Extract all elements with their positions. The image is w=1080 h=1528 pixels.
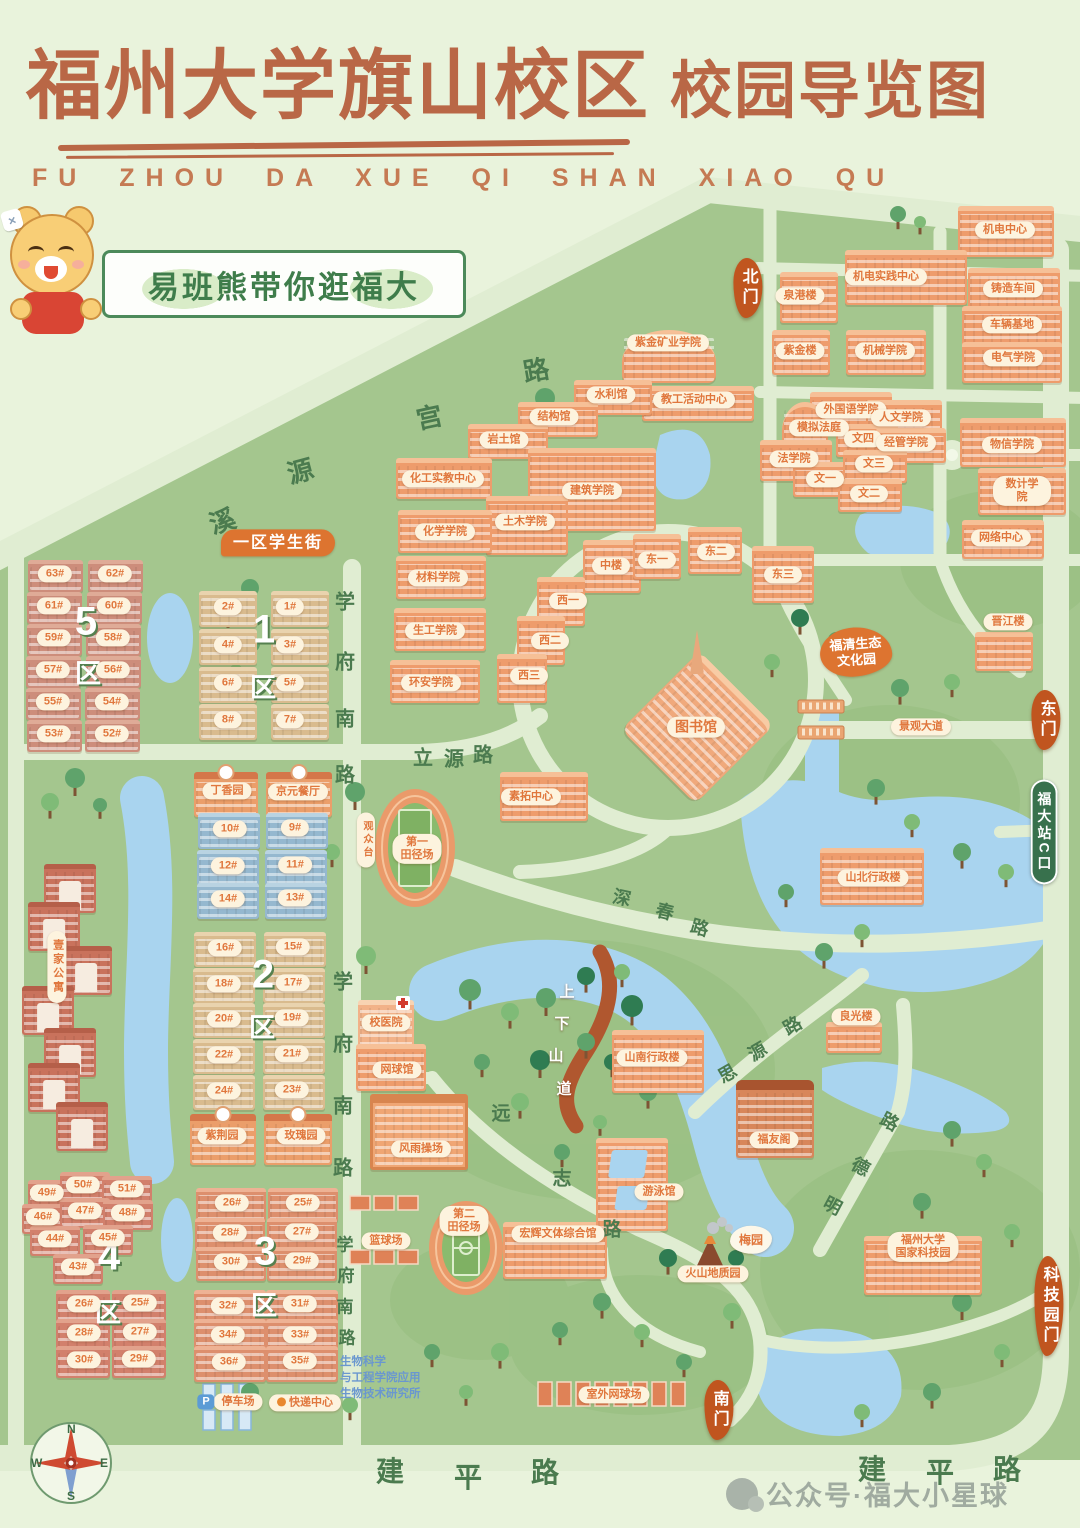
map-label: 水利馆 [587, 386, 636, 403]
parking-icon: P [197, 1394, 214, 1409]
road-name-char: 源 [444, 743, 464, 772]
map-overlay: 机电中心泉港楼机电实践中心铸造车间车辆基地电气学院紫金楼机械学院物信学院数计学院… [0, 0, 1080, 1528]
map-label: 法学院 [770, 450, 819, 467]
map-building [56, 1102, 108, 1151]
watermark: 公众号·福大小星球 [726, 1474, 1009, 1513]
map-label: 环安学院 [401, 674, 461, 691]
wechat-icon [726, 1478, 758, 1510]
map-label: 50# [66, 1176, 100, 1193]
zone-mark: 5 [75, 600, 97, 645]
map-label: 物信学院 [982, 436, 1042, 453]
map-building [826, 1022, 882, 1053]
map-label: 人文学院 [871, 409, 931, 426]
map-label: 岩土馆 [480, 431, 529, 448]
institute-note: 生物科学 与工程学院应用 生物技术研究所 [332, 1352, 429, 1404]
compass-w: W [31, 1456, 42, 1470]
road-name-char: 南 [335, 703, 355, 732]
map-label: 网络中心 [971, 529, 1031, 546]
road-name-char: 学 [333, 966, 353, 995]
map-label: 结构馆 [530, 408, 579, 425]
road-name-char: 路 [688, 912, 712, 942]
map-label: 13# [278, 889, 312, 906]
map-label: 宏辉文体综合馆 [512, 1225, 605, 1242]
watermark-text: 公众号·福大小星球 [766, 1474, 1009, 1513]
map-label: 54# [95, 693, 129, 710]
map-label: 壹家公寓 [47, 931, 66, 1003]
map-label: 57# [36, 661, 70, 678]
metro-exit: 福大站C口 [1031, 779, 1058, 884]
map-label: 室外网球场 [579, 1386, 650, 1403]
eco-park-label: 福清生态 文化园 [818, 625, 893, 679]
mascot-banner: 易班熊带你逛福大 [102, 250, 466, 318]
map-label: 玫瑰园 [277, 1127, 326, 1144]
road-name-char: 明 [819, 1189, 847, 1220]
zone-mark: 1 [253, 608, 275, 653]
map-label: 东二 [697, 543, 735, 560]
mascot-banner-text: 易班熊带你逛福大 [148, 262, 420, 307]
map-label: 26# [215, 1194, 249, 1211]
map-label: 文一 [806, 470, 844, 487]
road-name-char: 远 [491, 1099, 510, 1126]
map-label: 45# [91, 1229, 125, 1246]
map-label: 56# [96, 661, 130, 678]
map-label: 紫荆园 [198, 1127, 247, 1144]
map-label: 27# [123, 1323, 157, 1340]
map-label: 55# [36, 693, 70, 710]
bear-head [10, 214, 94, 296]
road-name-char: 德 [847, 1150, 875, 1181]
map-label: 中楼 [592, 557, 630, 574]
map-label: 建筑学院 [562, 482, 622, 499]
map-label: 58# [96, 629, 130, 646]
map-label: 19# [275, 1009, 309, 1026]
road-name-char: 府 [333, 1028, 353, 1057]
bear-blush [18, 260, 30, 269]
map-label: 25# [286, 1194, 320, 1211]
map-label: 63# [38, 565, 72, 582]
map-label: 27# [285, 1223, 319, 1240]
road-name-char: 立 [413, 742, 433, 771]
road-name-char: 路 [778, 1009, 807, 1041]
road-name-char: 南 [337, 1293, 354, 1318]
map-label: 36# [212, 1353, 246, 1370]
road-name-char: 学 [335, 586, 355, 615]
map-label: 西二 [531, 632, 569, 649]
map-label: 34# [211, 1326, 245, 1343]
map-label: 素拓中心 [501, 788, 561, 805]
map-label: 23# [275, 1081, 309, 1098]
map-label: 44# [38, 1230, 72, 1247]
map-label: 东三 [764, 566, 802, 583]
road-name-char: 山 [548, 1045, 563, 1066]
map-label: 化工实教中心 [402, 470, 484, 487]
map-label: 观众台 [357, 813, 375, 868]
road-name-char: 学 [337, 1231, 354, 1256]
map-label: 化学学院 [415, 523, 475, 540]
map-label: 网球馆 [373, 1061, 422, 1078]
zone-mark: 区 [251, 1286, 277, 1323]
map-label: 7# [276, 711, 304, 728]
map-label: 35# [283, 1352, 317, 1369]
street-banner: 一区学生街 [221, 529, 335, 556]
map-label: 62# [98, 565, 132, 582]
map-label: 火山地质园 [678, 1265, 749, 1282]
map-label: 梅园 [730, 1226, 772, 1254]
map-label: 17# [276, 974, 310, 991]
map-label: 12# [211, 857, 245, 874]
map-label: 20# [207, 1010, 241, 1027]
map-label: 材料学院 [408, 569, 468, 586]
map-label: 机械学院 [855, 342, 915, 359]
map-label: 山南行政楼 [617, 1049, 688, 1066]
map-label: 6# [214, 674, 242, 691]
road-name-char: 路 [473, 739, 493, 768]
road-name-char: 路 [339, 1324, 356, 1349]
map-label: 14# [211, 890, 245, 907]
road-name-char: 上 [559, 981, 574, 1002]
map-label: 紫金矿业学院 [627, 334, 709, 351]
bear-mascot: × [2, 206, 110, 338]
map-label: 21# [275, 1045, 309, 1062]
road-name-char: 府 [338, 1262, 355, 1287]
gate-scipark: 科技园门 [1034, 1256, 1063, 1356]
bear-blush [72, 260, 84, 269]
map-label: 图书馆 [667, 717, 725, 738]
map-building [975, 632, 1033, 671]
map-label: 校医院 [362, 1014, 411, 1031]
road-name-char: 路 [602, 1215, 621, 1242]
campus-map-poster: 机电中心泉港楼机电实践中心铸造车间车辆基地电气学院紫金楼机械学院物信学院数计学院… [0, 0, 1080, 1528]
map-label: 60# [97, 597, 131, 614]
map-label: 28# [213, 1224, 247, 1241]
map-label: 京元餐厅 [268, 783, 328, 800]
compass-rose: N E S W [28, 1420, 114, 1506]
page-title: 福州大学旗山校区 校园导览图 [26, 24, 990, 134]
zone-mark: 区 [250, 668, 276, 705]
map-label: 风雨操场 [391, 1140, 451, 1157]
map-label: 丁香园 [203, 782, 252, 799]
map-label: 30# [214, 1253, 248, 1270]
map-label: 快递中心 [269, 1394, 341, 1411]
bear-paw [80, 298, 102, 320]
map-label: 福州大学 国家科技园 [888, 1232, 959, 1262]
map-label: 61# [37, 597, 71, 614]
map-label: 机电中心 [975, 221, 1035, 238]
map-label: 游泳馆 [635, 1183, 684, 1200]
map-label: 良光楼 [832, 1008, 881, 1025]
bear-eye [28, 246, 44, 258]
road-name-char: 宫 [412, 395, 445, 437]
bear-eye [58, 246, 74, 258]
map-label: 2# [214, 598, 242, 615]
map-label: 5# [276, 674, 304, 691]
map-label: 32# [211, 1297, 245, 1314]
library-spire [690, 630, 704, 674]
map-label: 26# [67, 1295, 101, 1312]
map-label: 文三 [855, 455, 893, 472]
map-label: 25# [123, 1294, 157, 1311]
map-label: 29# [285, 1252, 319, 1269]
compass-s: S [67, 1489, 75, 1503]
map-label: 篮球场 [362, 1232, 411, 1249]
map-label: 52# [95, 725, 129, 742]
road-name-char: 路 [876, 1105, 904, 1136]
map-label: 3# [276, 636, 304, 653]
road-name-char: 南 [333, 1090, 353, 1119]
road-name-char: 府 [335, 646, 355, 675]
map-label: 数计学院 [993, 476, 1051, 506]
map-label: 文二 [850, 485, 888, 502]
map-label: 第一 田径场 [393, 834, 442, 864]
map-label: 9# [281, 819, 309, 836]
road-name-char: 路 [335, 759, 355, 788]
road-name-char: 源 [283, 449, 318, 491]
map-label: 49# [30, 1184, 64, 1201]
map-label: 经管学院 [876, 434, 936, 451]
map-label: 山北行政楼 [838, 869, 909, 886]
gate-north: 北门 [733, 258, 762, 318]
road-name-char: 下 [554, 1013, 569, 1034]
map-label: 模拟法庭 [789, 419, 849, 436]
map-label: 紫金楼 [776, 342, 825, 359]
map-label: 48# [111, 1204, 145, 1221]
map-label: 车辆基地 [982, 316, 1042, 333]
pool-water [608, 1150, 648, 1178]
road-name-char: 深 [610, 882, 633, 911]
map-label: 1# [276, 598, 304, 615]
compass-n: N [67, 1422, 76, 1436]
map-label: 景观大道 [891, 718, 951, 735]
map-label: 西三 [510, 667, 548, 684]
map-label: 第二 田径场 [440, 1206, 489, 1236]
map-label: 59# [37, 629, 71, 646]
map-label: 53# [37, 725, 71, 742]
compass-e: E [100, 1456, 108, 1470]
map-label: 29# [122, 1350, 156, 1367]
bear-paw [10, 298, 32, 320]
map-building [370, 1094, 468, 1170]
road-name-char: 建 [376, 1450, 404, 1490]
road-name-char: 春 [653, 896, 677, 926]
zone-mark: 3 [254, 1230, 276, 1275]
map-label: 8# [214, 711, 242, 728]
map-label: 生工学院 [405, 622, 465, 639]
map-label: 47# [68, 1202, 102, 1219]
road-name-char: 平 [454, 1456, 482, 1496]
map-label: 西一 [549, 592, 587, 609]
gate-east: 东门 [1031, 690, 1060, 750]
map-label: 10# [213, 820, 247, 837]
map-label: 福友阁 [750, 1131, 799, 1148]
map-label: 4# [214, 636, 242, 653]
map-label: 15# [276, 938, 310, 955]
map-label: 停车场 [214, 1393, 263, 1410]
road-name-char: 志 [552, 1164, 571, 1191]
road-name-char: 路 [333, 1152, 353, 1181]
map-label: 51# [110, 1180, 144, 1197]
map-label: 43# [61, 1258, 95, 1275]
zone-mark: 2 [252, 953, 274, 998]
map-label: 31# [283, 1295, 317, 1312]
title-sub: 校园导览图 [670, 40, 990, 130]
map-label: 28# [67, 1324, 101, 1341]
map-label: 18# [207, 975, 241, 992]
map-label: 22# [207, 1046, 241, 1063]
title-pinyin: FU ZHOU DA XUE QI SHAN XIAO QU [32, 164, 895, 193]
map-label: 16# [208, 939, 242, 956]
map-label: 30# [67, 1351, 101, 1368]
road-name-char: 路 [520, 349, 552, 390]
map-label: 铸造车间 [983, 280, 1043, 297]
map-label: 晋江楼 [984, 613, 1033, 630]
map-label: 24# [207, 1082, 241, 1099]
bear-body [22, 292, 84, 334]
map-label: 46# [26, 1208, 60, 1225]
map-label: 土木学院 [495, 513, 555, 530]
map-label: 电气学院 [983, 349, 1043, 366]
map-label: 泉港楼 [776, 287, 825, 304]
road-name-char: 道 [556, 1078, 571, 1099]
zone-mark: 区 [249, 1008, 275, 1045]
map-label: 11# [278, 856, 312, 873]
map-label: 机电实践中心 [845, 268, 927, 285]
map-label: 东一 [638, 551, 676, 568]
road-name-char: 源 [743, 1035, 772, 1067]
map-label: 教工活动中心 [653, 391, 735, 408]
road-name-char: 路 [531, 1451, 559, 1491]
title-main: 福州大学旗山校区 [26, 24, 650, 134]
gate-south: 南门 [704, 1380, 733, 1440]
map-label: 33# [283, 1326, 317, 1343]
